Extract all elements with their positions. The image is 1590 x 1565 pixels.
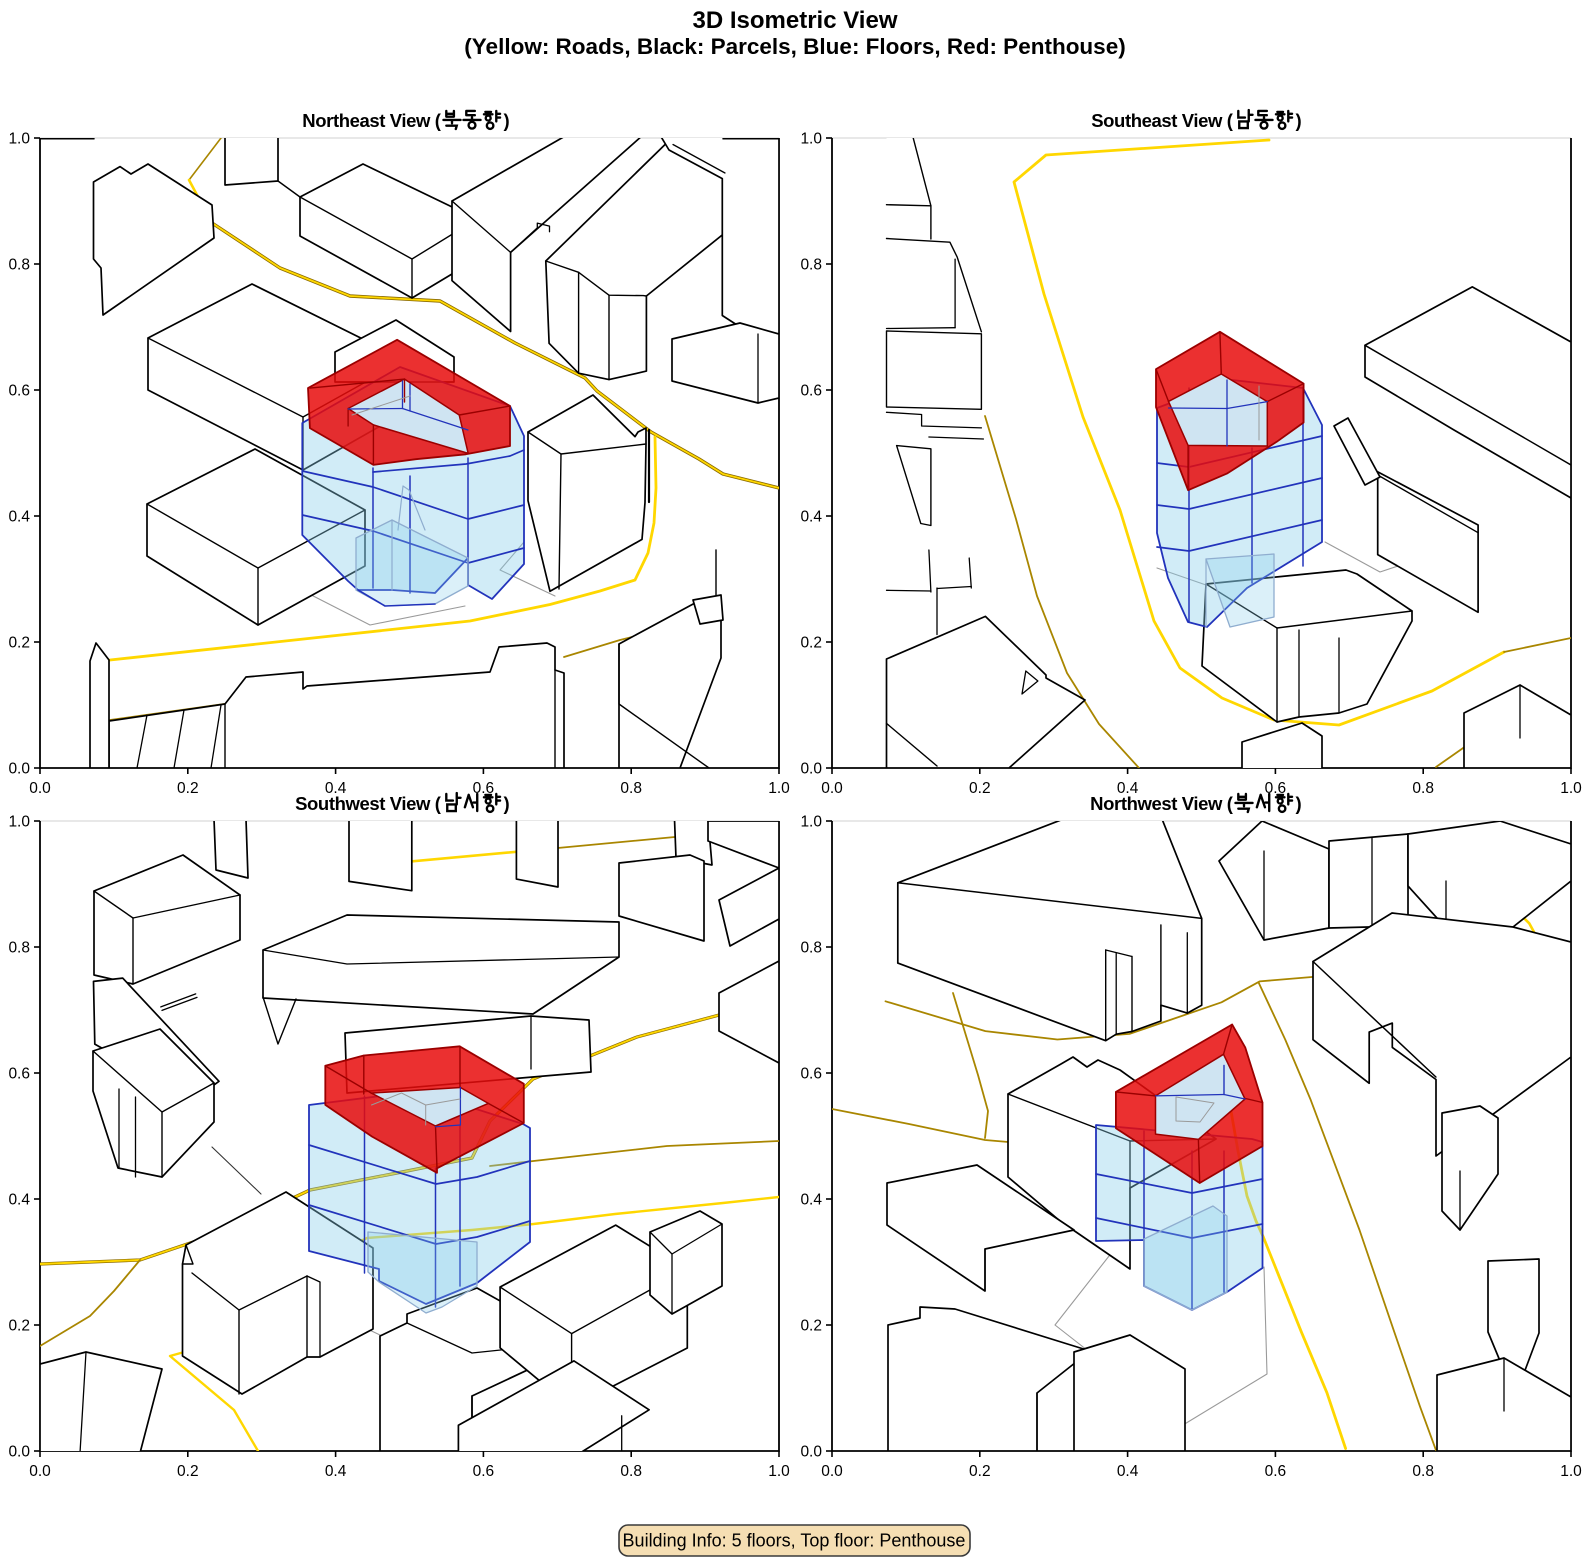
svg-text:0.4: 0.4 [800,509,822,526]
svg-text:0.2: 0.2 [8,635,30,652]
svg-text:1.0: 1.0 [800,814,822,831]
svg-text:3D Isometric View: 3D Isometric View [693,7,898,34]
svg-text:0.2: 0.2 [969,780,991,797]
svg-text:0.0: 0.0 [29,780,51,797]
svg-text:0.6: 0.6 [800,383,822,400]
svg-text:): ) [504,110,510,131]
svg-text:1.0: 1.0 [768,780,790,797]
svg-text:Building Info: 5 floors, Top f: Building Info: 5 floors, Top floor: Pent… [623,1531,966,1551]
svg-text:0.6: 0.6 [473,1463,495,1480]
svg-text:0.8: 0.8 [620,1463,642,1480]
svg-text:0.2: 0.2 [969,1463,991,1480]
svg-text:0.2: 0.2 [800,1318,822,1335]
svg-text:1.0: 1.0 [768,1463,790,1480]
svg-text:1.0: 1.0 [1560,1463,1582,1480]
svg-text:0.8: 0.8 [800,940,822,957]
svg-text:0.2: 0.2 [800,635,822,652]
svg-text:): ) [1296,793,1302,814]
svg-text:0.0: 0.0 [821,1463,843,1480]
svg-text:1.0: 1.0 [800,131,822,148]
svg-text:0.8: 0.8 [800,257,822,274]
svg-text:1.0: 1.0 [8,814,30,831]
svg-text:0.0: 0.0 [8,1444,30,1461]
svg-text:0.6: 0.6 [800,1066,822,1083]
svg-text:0.4: 0.4 [8,509,30,526]
svg-text:0.2: 0.2 [177,1463,199,1480]
svg-text:Southeast View (: Southeast View ( [1091,110,1234,131]
svg-text:0.8: 0.8 [8,940,30,957]
svg-text:0.6: 0.6 [1265,1463,1287,1480]
svg-text:0.0: 0.0 [821,780,843,797]
svg-text:0.0: 0.0 [800,761,822,778]
svg-text:0.6: 0.6 [8,1066,30,1083]
svg-text:0.2: 0.2 [8,1318,30,1335]
svg-text:(Yellow: Roads, Black: Parcels: (Yellow: Roads, Black: Parcels, Blue: Fl… [464,34,1125,59]
svg-text:1.0: 1.0 [8,131,30,148]
svg-text:0.0: 0.0 [29,1463,51,1480]
svg-text:1.0: 1.0 [1560,780,1582,797]
svg-text:0.0: 0.0 [800,1444,822,1461]
svg-text:0.6: 0.6 [8,383,30,400]
svg-text:0.8: 0.8 [620,780,642,797]
svg-text:0.8: 0.8 [1412,1463,1434,1480]
svg-text:0.0: 0.0 [8,761,30,778]
svg-text:): ) [504,793,510,814]
svg-text:0.2: 0.2 [177,780,199,797]
svg-text:Northeast View (: Northeast View ( [302,110,441,131]
svg-text:0.4: 0.4 [325,1463,347,1480]
svg-text:0.4: 0.4 [800,1192,822,1209]
svg-text:0.8: 0.8 [8,257,30,274]
svg-text:0.4: 0.4 [1117,1463,1139,1480]
svg-text:): ) [1296,110,1302,131]
svg-text:0.8: 0.8 [1412,780,1434,797]
svg-text:Northwest View (: Northwest View ( [1090,793,1234,814]
svg-text:Southwest View (: Southwest View ( [295,793,442,814]
svg-text:0.4: 0.4 [8,1192,30,1209]
